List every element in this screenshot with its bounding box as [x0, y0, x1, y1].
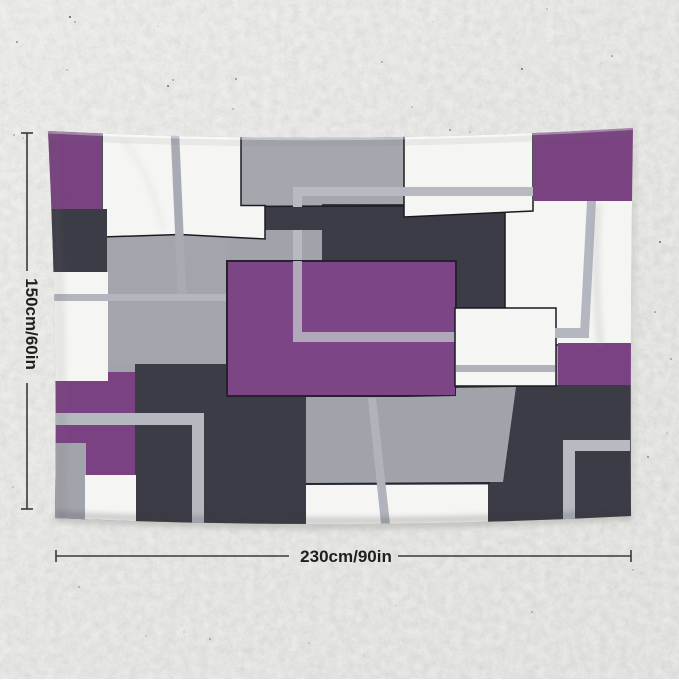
- svg-text:150cm/60in: 150cm/60in: [22, 278, 41, 370]
- svg-text:230cm/90in: 230cm/90in: [300, 547, 392, 566]
